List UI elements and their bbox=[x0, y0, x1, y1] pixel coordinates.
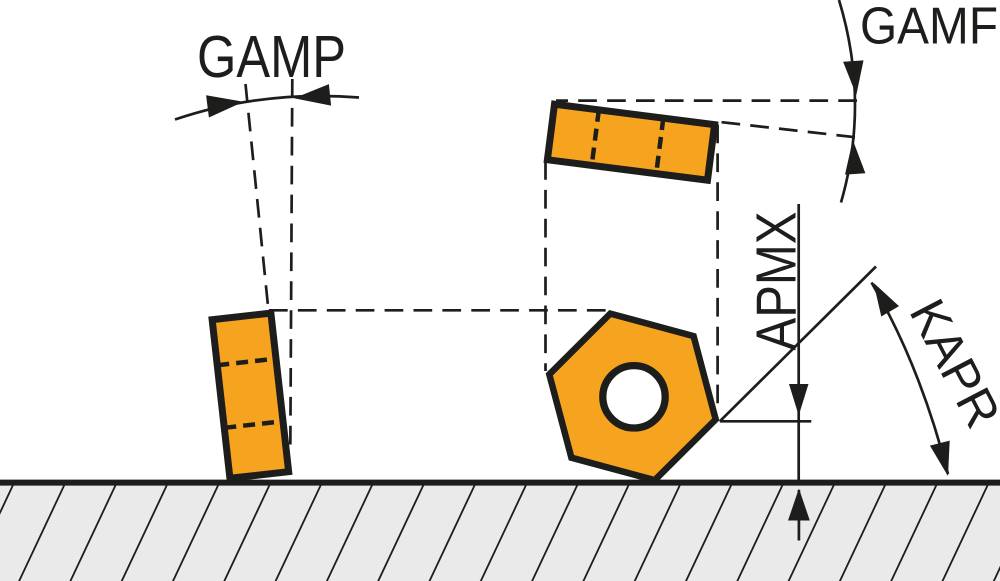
svg-text:GAMP: GAMP bbox=[197, 24, 346, 90]
svg-text:APMX: APMX bbox=[745, 212, 808, 351]
svg-text:GAMF: GAMF bbox=[860, 0, 998, 56]
